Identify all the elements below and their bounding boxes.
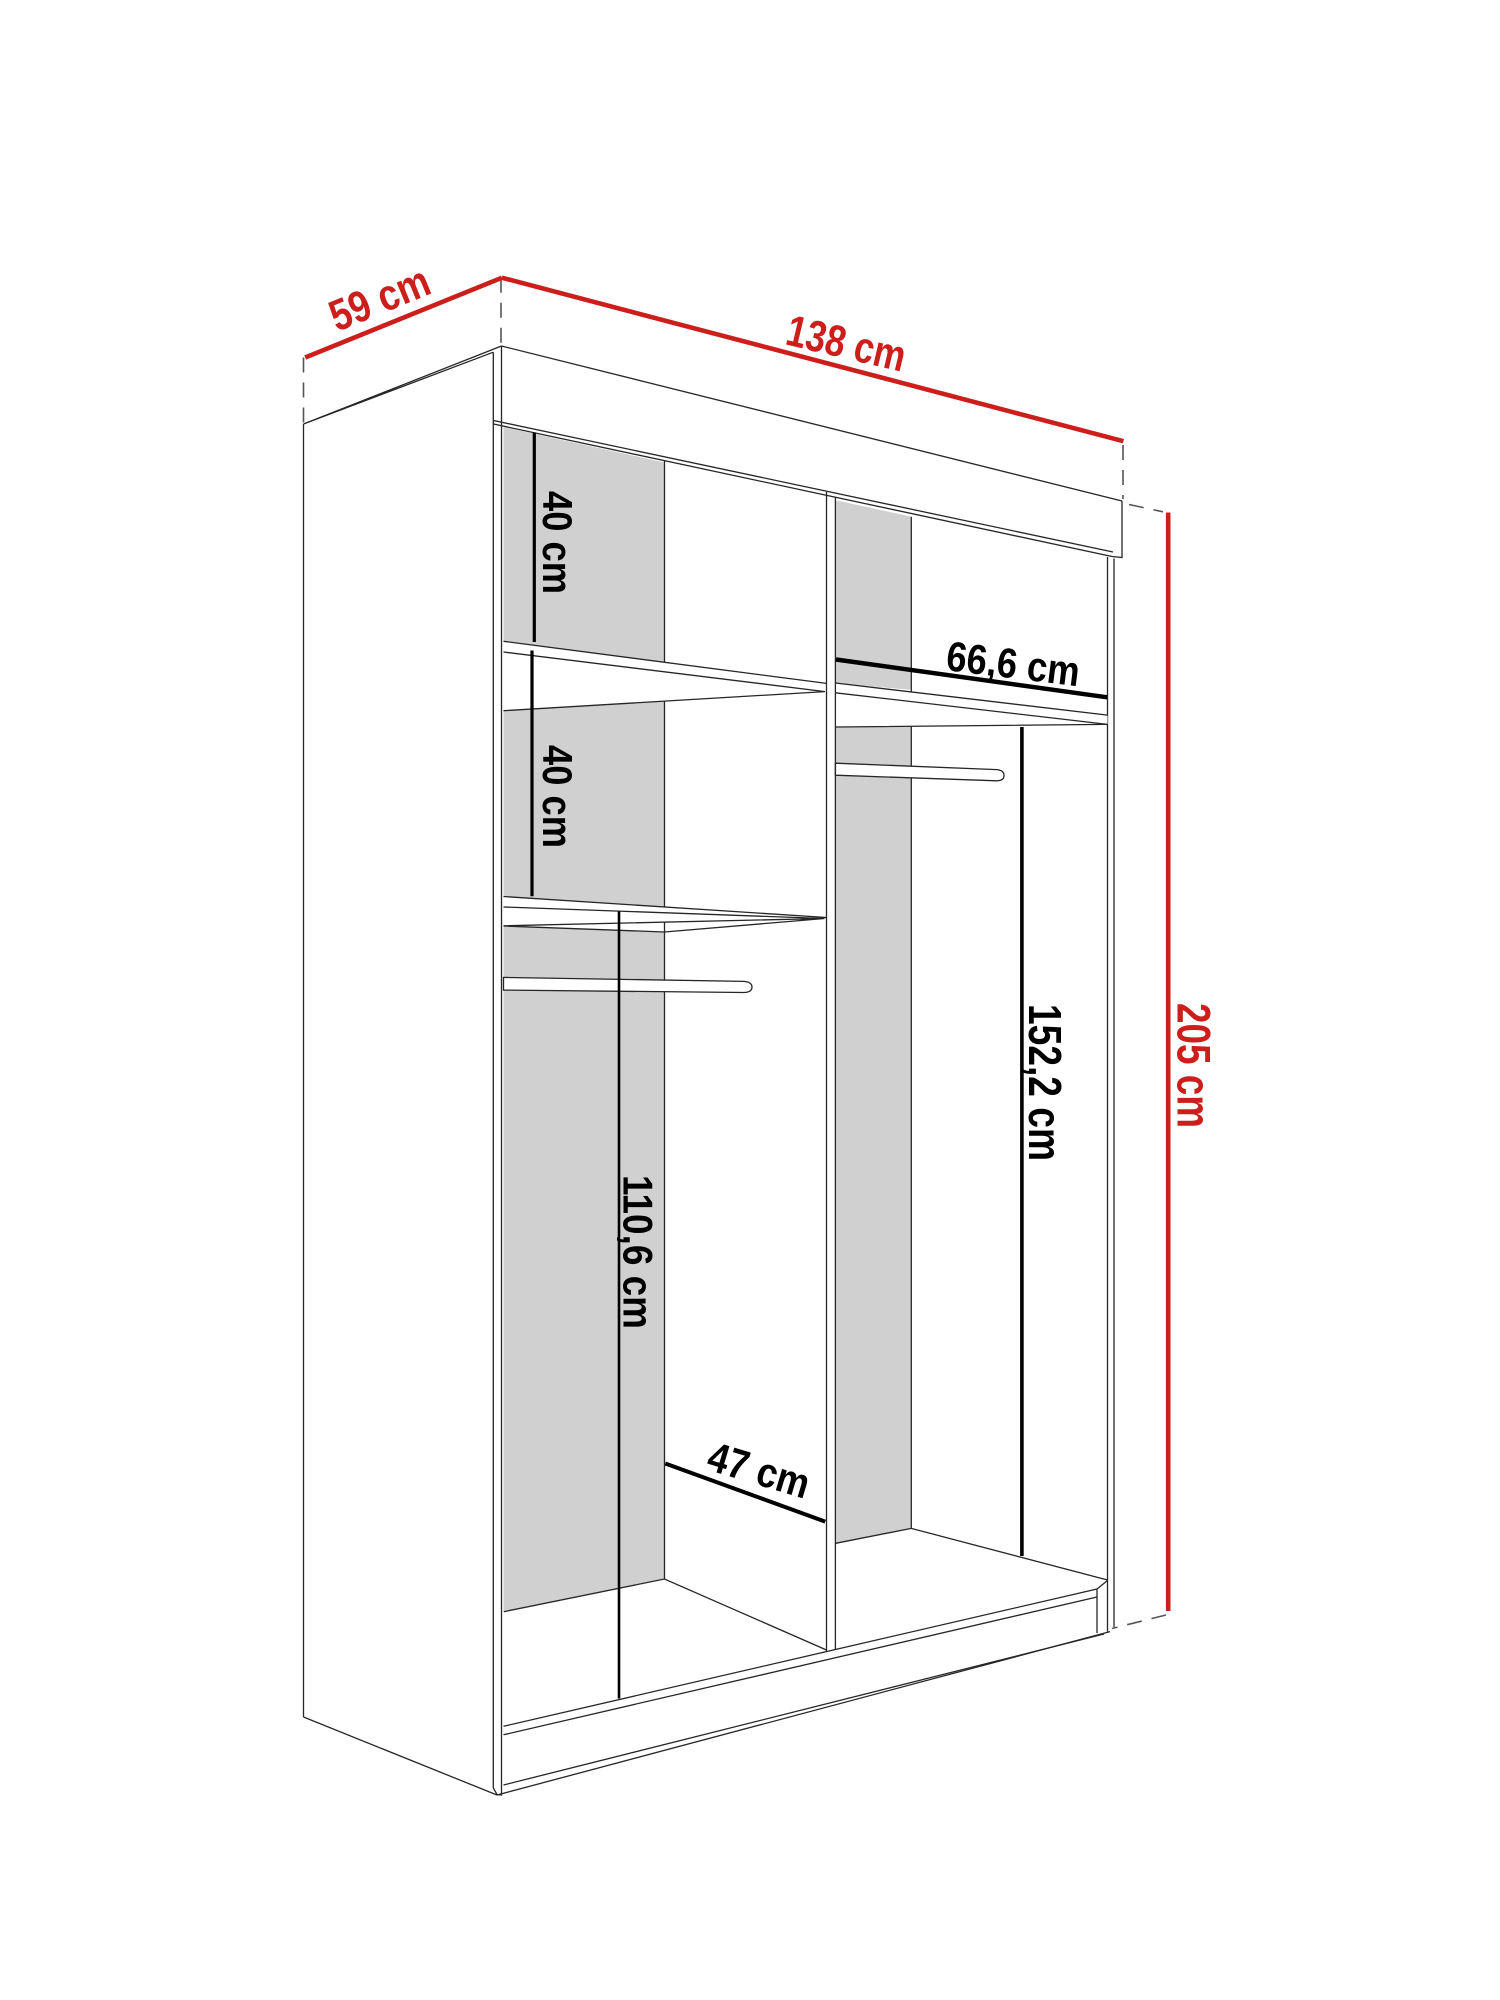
svg-text:152,2 cm: 152,2 cm <box>1019 1004 1071 1161</box>
svg-text:40 cm: 40 cm <box>534 745 581 848</box>
svg-text:110,6 cm: 110,6 cm <box>615 1175 662 1329</box>
svg-text:205 cm: 205 cm <box>1168 1003 1221 1128</box>
svg-text:40 cm: 40 cm <box>534 491 581 594</box>
